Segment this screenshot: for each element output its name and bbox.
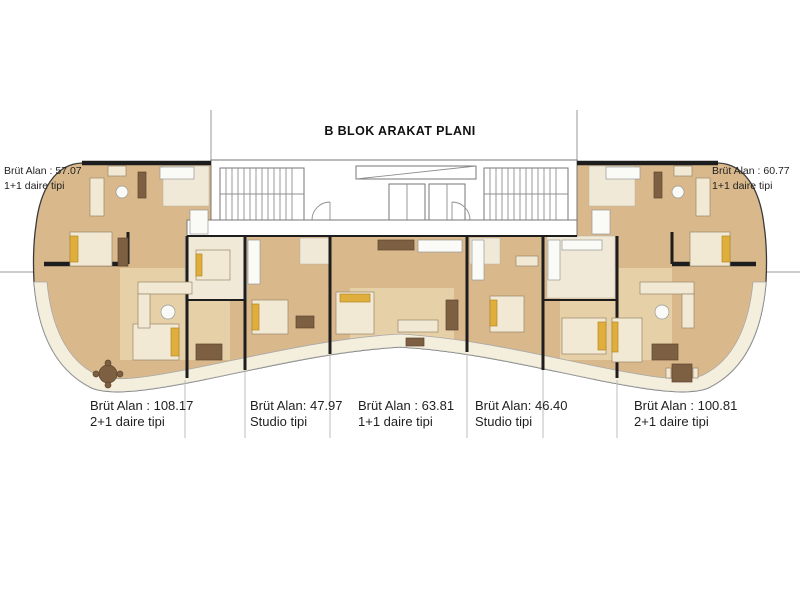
unit-type: 2+1 daire tipi — [634, 414, 737, 430]
unit-area: Brüt Alan : 63.81 — [358, 398, 454, 414]
plan-title: B BLOK ARAKAT PLANI — [200, 124, 600, 138]
unit-type: 1+1 daire tipi — [358, 414, 454, 430]
unit-label-top-right: Brüt Alan : 60.77 1+1 daire tipi — [712, 164, 790, 194]
unit-area: Brüt Alan: 47.97 — [250, 398, 343, 414]
building-core — [187, 160, 577, 236]
unit-label-bottom-center: Brüt Alan : 63.81 1+1 daire tipi — [358, 398, 454, 430]
staircase-right — [484, 168, 568, 220]
staircase-left — [220, 168, 304, 220]
floorplan-page: B BLOK ARAKAT PLANI Brüt Alan : 57.07 1+… — [0, 0, 800, 600]
corridor — [187, 220, 577, 236]
unit-type: 2+1 daire tipi — [90, 414, 193, 430]
unit-area: Brüt Alan: 46.40 — [475, 398, 568, 414]
unit-type: 1+1 daire tipi — [4, 179, 82, 194]
unit-type: Studio tipi — [475, 414, 568, 430]
unit-area: Brüt Alan : 108.17 — [90, 398, 193, 414]
unit-label-bottom-studio-left: Brüt Alan: 47.97 Studio tipi — [250, 398, 343, 430]
unit-type: 1+1 daire tipi — [712, 179, 790, 194]
shaft-ramp — [356, 166, 476, 179]
unit-area: Brüt Alan : 60.77 — [712, 164, 790, 179]
unit-label-bottom-studio-right: Brüt Alan: 46.40 Studio tipi — [475, 398, 568, 430]
unit-area: Brüt Alan : 57.07 — [4, 164, 82, 179]
unit-label-bottom-left-corner: Brüt Alan : 108.17 2+1 daire tipi — [90, 398, 193, 430]
unit-label-bottom-right-corner: Brüt Alan : 100.81 2+1 daire tipi — [634, 398, 737, 430]
unit-area: Brüt Alan : 100.81 — [634, 398, 737, 414]
unit-type: Studio tipi — [250, 414, 343, 430]
unit-label-top-left: Brüt Alan : 57.07 1+1 daire tipi — [4, 164, 82, 194]
floorplan-drawing — [0, 0, 800, 600]
